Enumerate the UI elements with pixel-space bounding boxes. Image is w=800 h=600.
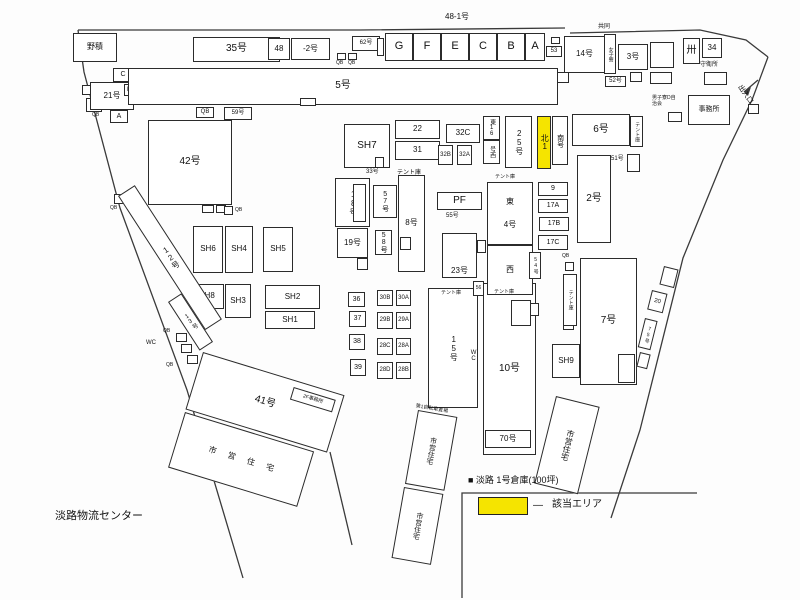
small-structure xyxy=(511,300,531,326)
cell-a: A xyxy=(525,33,545,61)
office-2f: 2F事務所 xyxy=(290,387,336,412)
building-33-label: 33号 xyxy=(366,169,379,176)
qb-box: QB xyxy=(196,107,214,118)
building-21-unit-a: A xyxy=(110,110,128,123)
small-structure xyxy=(477,240,486,253)
legend-item: ■ 淡路 1号倉庫(100坪) xyxy=(468,476,558,486)
building-sh5: SH5 xyxy=(263,227,293,272)
small-structure xyxy=(668,112,682,122)
small-structure xyxy=(748,104,759,114)
building-sh6: SH6 xyxy=(193,226,223,273)
small-structure xyxy=(300,98,316,106)
building-2: 2号 xyxy=(577,155,611,243)
building-south: 南号 xyxy=(552,116,568,165)
small-structure xyxy=(400,237,411,250)
small-structure xyxy=(176,333,187,342)
building-38: 38 xyxy=(349,334,365,350)
building-north1-highlight: 北1 xyxy=(537,116,551,169)
building-48-2: -2号 xyxy=(291,38,330,60)
small-structure xyxy=(357,258,368,270)
office-building: 事務所 xyxy=(688,95,730,125)
small-structure xyxy=(627,154,640,172)
building-east16-west: 号西 xyxy=(483,140,500,164)
qb-box xyxy=(565,262,574,271)
building-54: 54号 xyxy=(529,252,541,279)
guard-post xyxy=(704,72,727,85)
building-59: 59号 xyxy=(224,107,252,120)
building-31: 31 xyxy=(395,141,440,160)
building-30a: 30A xyxy=(396,290,411,306)
small-structure xyxy=(650,42,674,68)
building-36: 36 xyxy=(348,292,365,307)
building-34: 34 xyxy=(702,38,722,58)
building-east4: 東4号 xyxy=(487,182,533,245)
small-structure xyxy=(530,303,539,316)
building-17c: 17C xyxy=(538,235,568,250)
wc-label: WC xyxy=(146,340,156,347)
tent-label: テント庫 xyxy=(494,290,514,296)
building-sh1: SH1 xyxy=(265,311,315,329)
qb-marker: QB xyxy=(163,329,170,335)
tent-label: テント庫 xyxy=(441,291,461,297)
building-35: 35号 xyxy=(193,37,280,62)
building-37: 37 xyxy=(349,311,366,327)
building-32b: 32B xyxy=(438,145,453,165)
building-62: 62号 xyxy=(352,36,380,51)
building-3: 3号 xyxy=(618,44,648,70)
building-9: 9 xyxy=(538,182,568,196)
small-structure xyxy=(181,344,192,353)
building-28c: 28C xyxy=(377,338,393,355)
building-30b: 30B xyxy=(377,290,393,306)
building-28a: 28A xyxy=(396,338,411,355)
qb-marker: QB xyxy=(92,113,99,119)
guard-post-label: 守衛所 xyxy=(700,62,718,69)
building-15: 15号 xyxy=(428,288,478,408)
legend-highlight-swatch xyxy=(478,497,528,515)
building-14: 14号 xyxy=(564,36,605,73)
small-structure xyxy=(551,37,560,44)
qb-marker: QB xyxy=(110,206,117,212)
small-structure xyxy=(557,72,569,83)
building-39: 39 xyxy=(350,359,366,376)
small-structure xyxy=(353,184,366,222)
building-19: 19号 xyxy=(337,228,368,258)
building-6: 6号 xyxy=(572,114,630,146)
qb-marker: QB xyxy=(166,363,173,369)
building-23: 23号 xyxy=(442,233,477,278)
qb-box xyxy=(348,53,357,60)
building-48-1-label: 48-1号 xyxy=(445,13,469,22)
building-sh4: SH4 xyxy=(225,226,253,273)
site-map: 野積 C 21号 B A QB QB 35号 48 -2号 62号 QB QB … xyxy=(0,0,800,600)
building-58: 58号 xyxy=(375,230,392,255)
qb-marker: QB xyxy=(235,208,242,214)
building-32c: 32C xyxy=(446,124,480,143)
tent-label: テント庫 xyxy=(397,170,421,177)
building-48: 48 xyxy=(268,38,290,60)
tent-strip: テント庫 xyxy=(630,116,643,147)
cell-c: C xyxy=(469,33,497,61)
girls-dorm: 女子寮 xyxy=(604,34,616,74)
qb-box xyxy=(224,206,233,215)
legend-dash: — xyxy=(533,500,543,511)
building-29a: 29A xyxy=(396,312,411,329)
legend-area-label: 該当エリア xyxy=(552,499,602,510)
building-8: 8号 xyxy=(398,175,425,272)
building-29b: 29B xyxy=(377,312,393,329)
small-structure xyxy=(187,355,198,364)
qb-marker: QB xyxy=(562,254,569,260)
building-32a: 32A xyxy=(457,145,472,165)
building-pf: PF xyxy=(437,192,482,210)
building-east16: 東16 xyxy=(483,116,500,140)
building-42: 42号 xyxy=(148,120,232,205)
building-sh3: SH3 xyxy=(225,284,251,318)
building-5: 5号 xyxy=(128,68,558,105)
building-yard: 野積 xyxy=(73,33,117,62)
cell-e: E xyxy=(441,33,469,61)
building-55-label: 55号 xyxy=(446,213,459,220)
building-52: 52号 xyxy=(605,76,626,87)
building-west: 西 xyxy=(487,245,533,295)
cell-b: B xyxy=(497,33,525,61)
cell-g: G xyxy=(385,33,413,61)
site-title: 淡路物流センター xyxy=(55,510,143,522)
kyodo-label: 共同 xyxy=(598,24,610,31)
building-25: 25号 xyxy=(505,116,532,168)
small-structure xyxy=(377,38,384,56)
stair-symbol: 卅 xyxy=(683,38,700,64)
qb-marker: QB xyxy=(336,61,343,67)
qb-box xyxy=(337,53,346,60)
building-28b: 28B xyxy=(396,362,411,379)
building-51-label: 51号 xyxy=(611,156,624,163)
small-structure xyxy=(630,72,642,82)
building-53: 53 xyxy=(546,46,562,57)
wc-label: WC xyxy=(470,350,477,362)
building-17a: 17A xyxy=(538,199,568,213)
building-70: 70号 xyxy=(485,430,531,448)
building-57: 57号 xyxy=(373,185,397,218)
tent-strip: テント庫 xyxy=(563,274,577,326)
building-28d: 28D xyxy=(377,362,393,379)
building-33 xyxy=(375,157,384,168)
qb-marker: QB xyxy=(348,61,355,67)
building-sh9: SH9 xyxy=(552,344,580,378)
mens-dorm-label: 男子寮D自治会 xyxy=(652,96,680,107)
small-structure xyxy=(202,205,214,213)
tent-label: テント庫 xyxy=(495,175,515,181)
small-structure xyxy=(618,354,635,383)
small-structure xyxy=(650,72,672,84)
building-18: 18号 xyxy=(335,178,370,227)
building-22: 22 xyxy=(395,120,440,139)
building-17b: 17B xyxy=(539,217,569,231)
cell-f: F xyxy=(413,33,441,61)
building-sh2: SH2 xyxy=(265,285,320,309)
